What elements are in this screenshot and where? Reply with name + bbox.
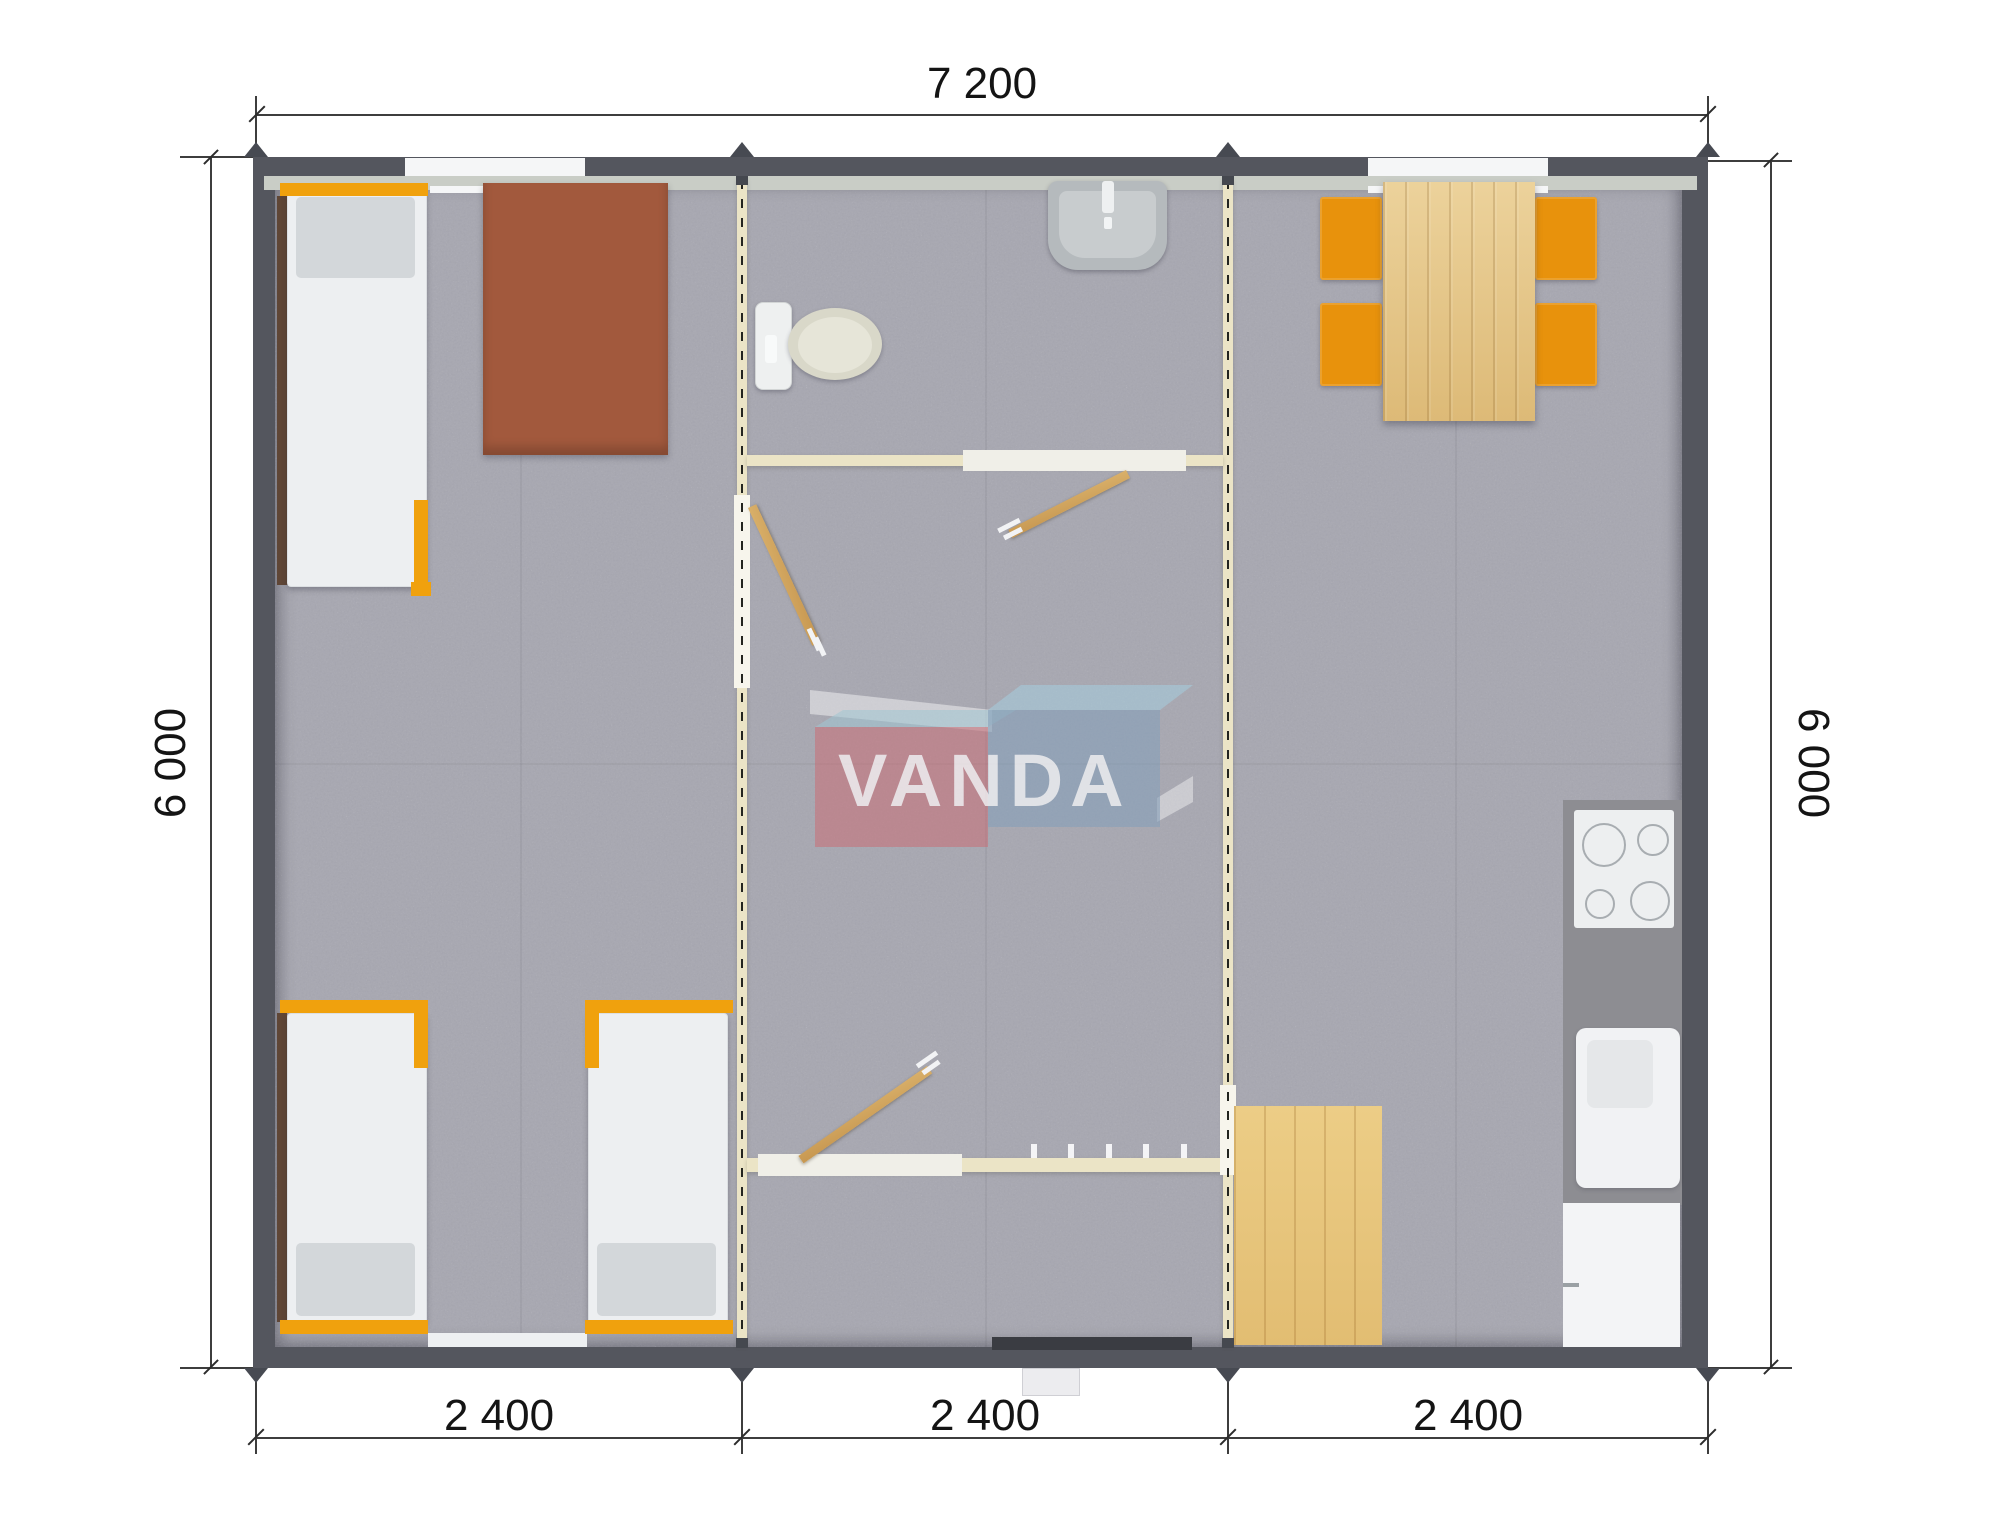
module-joint-marker (1216, 1368, 1240, 1383)
chair (1320, 303, 1382, 386)
dimension-line-top (256, 114, 1708, 116)
dimension-extension-line (1707, 1378, 1709, 1454)
watermark-red-box-top-face (815, 710, 1016, 727)
bed-footboard (414, 1013, 428, 1068)
pillow (597, 1243, 716, 1316)
toilet-seat (798, 317, 872, 373)
toilet-flush-button (765, 335, 777, 363)
bed-headboard (585, 1000, 733, 1013)
dining-table (1383, 182, 1535, 421)
faucet (1102, 181, 1114, 213)
dimension-line-right (1770, 161, 1772, 1369)
pillow (296, 197, 415, 278)
module-joint-marker (1696, 1368, 1720, 1383)
burner (1630, 881, 1670, 921)
coat-hook (1106, 1144, 1112, 1158)
bed-footboard (411, 582, 431, 596)
hallway-sliding-door (758, 1154, 962, 1176)
bed-footboard (585, 1320, 733, 1334)
refrigerator (1563, 1203, 1680, 1347)
wall-cap (1222, 1338, 1234, 1348)
kitchen-sink-basin (1587, 1040, 1653, 1108)
window-bottom-left (428, 1333, 587, 1347)
coat-hook (1068, 1144, 1074, 1158)
pillow (296, 1243, 415, 1316)
desk (483, 183, 668, 455)
building-outer-walls: VANDA (253, 157, 1708, 1368)
wood-floor-mat (1234, 1106, 1382, 1345)
module-joint-marker (1696, 142, 1720, 157)
wall-cap (1222, 176, 1234, 185)
entrance-door (992, 1337, 1192, 1350)
watermark-logo-text: VANDA (838, 738, 1168, 823)
bed-footboard (280, 1320, 428, 1334)
module-joint-marker (244, 1368, 268, 1383)
wall-cap (736, 1338, 748, 1348)
bathroom-sliding-door (963, 450, 1186, 471)
dimension-label-module-1: 2 400 (399, 1392, 599, 1440)
dimension-label-depth-right: 6 000 (1787, 613, 1837, 913)
chair (1535, 303, 1597, 386)
window-top-right (1368, 158, 1548, 176)
burner (1585, 889, 1615, 919)
coat-hook (1181, 1144, 1187, 1158)
dimension-label-module-3: 2 400 (1368, 1392, 1568, 1440)
window-top-left (405, 158, 585, 176)
dimension-label-total-width: 7 200 (827, 60, 1137, 108)
dimension-label-module-2: 2 400 (885, 1392, 1085, 1440)
dimension-extension-line (255, 1378, 257, 1454)
module-joint-marker (730, 1368, 754, 1383)
refrigerator-handle (1563, 1283, 1579, 1287)
dimension-line-left (210, 157, 212, 1369)
bed-footboard (585, 1013, 599, 1068)
module-joint-marker (1216, 142, 1240, 157)
wall-cap (736, 176, 748, 185)
dimension-extension-line (1708, 160, 1792, 162)
coat-hook (1143, 1144, 1149, 1158)
partition-axis-line (1227, 180, 1229, 1347)
entrance-step (1022, 1368, 1080, 1396)
dimension-extension-line (1708, 1367, 1792, 1369)
dimension-label-depth-left: 6 000 (147, 613, 197, 913)
bed-footboard (414, 500, 428, 592)
bed-headboard (280, 1000, 428, 1013)
burner (1637, 824, 1669, 856)
vanda-watermark: VANDA (810, 680, 1193, 865)
faucet-knob (1104, 217, 1112, 229)
chair (1535, 197, 1597, 280)
burner (1582, 823, 1626, 867)
floorplan-canvas: 7 200 2 400 2 400 2 400 6 000 6 000 (0, 0, 2000, 1537)
bed-headboard (280, 183, 428, 196)
module-joint-marker (730, 142, 754, 157)
coat-hook (1031, 1144, 1037, 1158)
partition-axis-line (741, 180, 743, 1347)
module-joint-marker (244, 142, 268, 157)
chair (1320, 197, 1382, 280)
dimension-extension-line (1227, 1378, 1229, 1454)
dimension-extension-line (741, 1378, 743, 1454)
watermark-blue-box-top-face (988, 685, 1193, 710)
bed-side-rail (277, 1013, 287, 1322)
